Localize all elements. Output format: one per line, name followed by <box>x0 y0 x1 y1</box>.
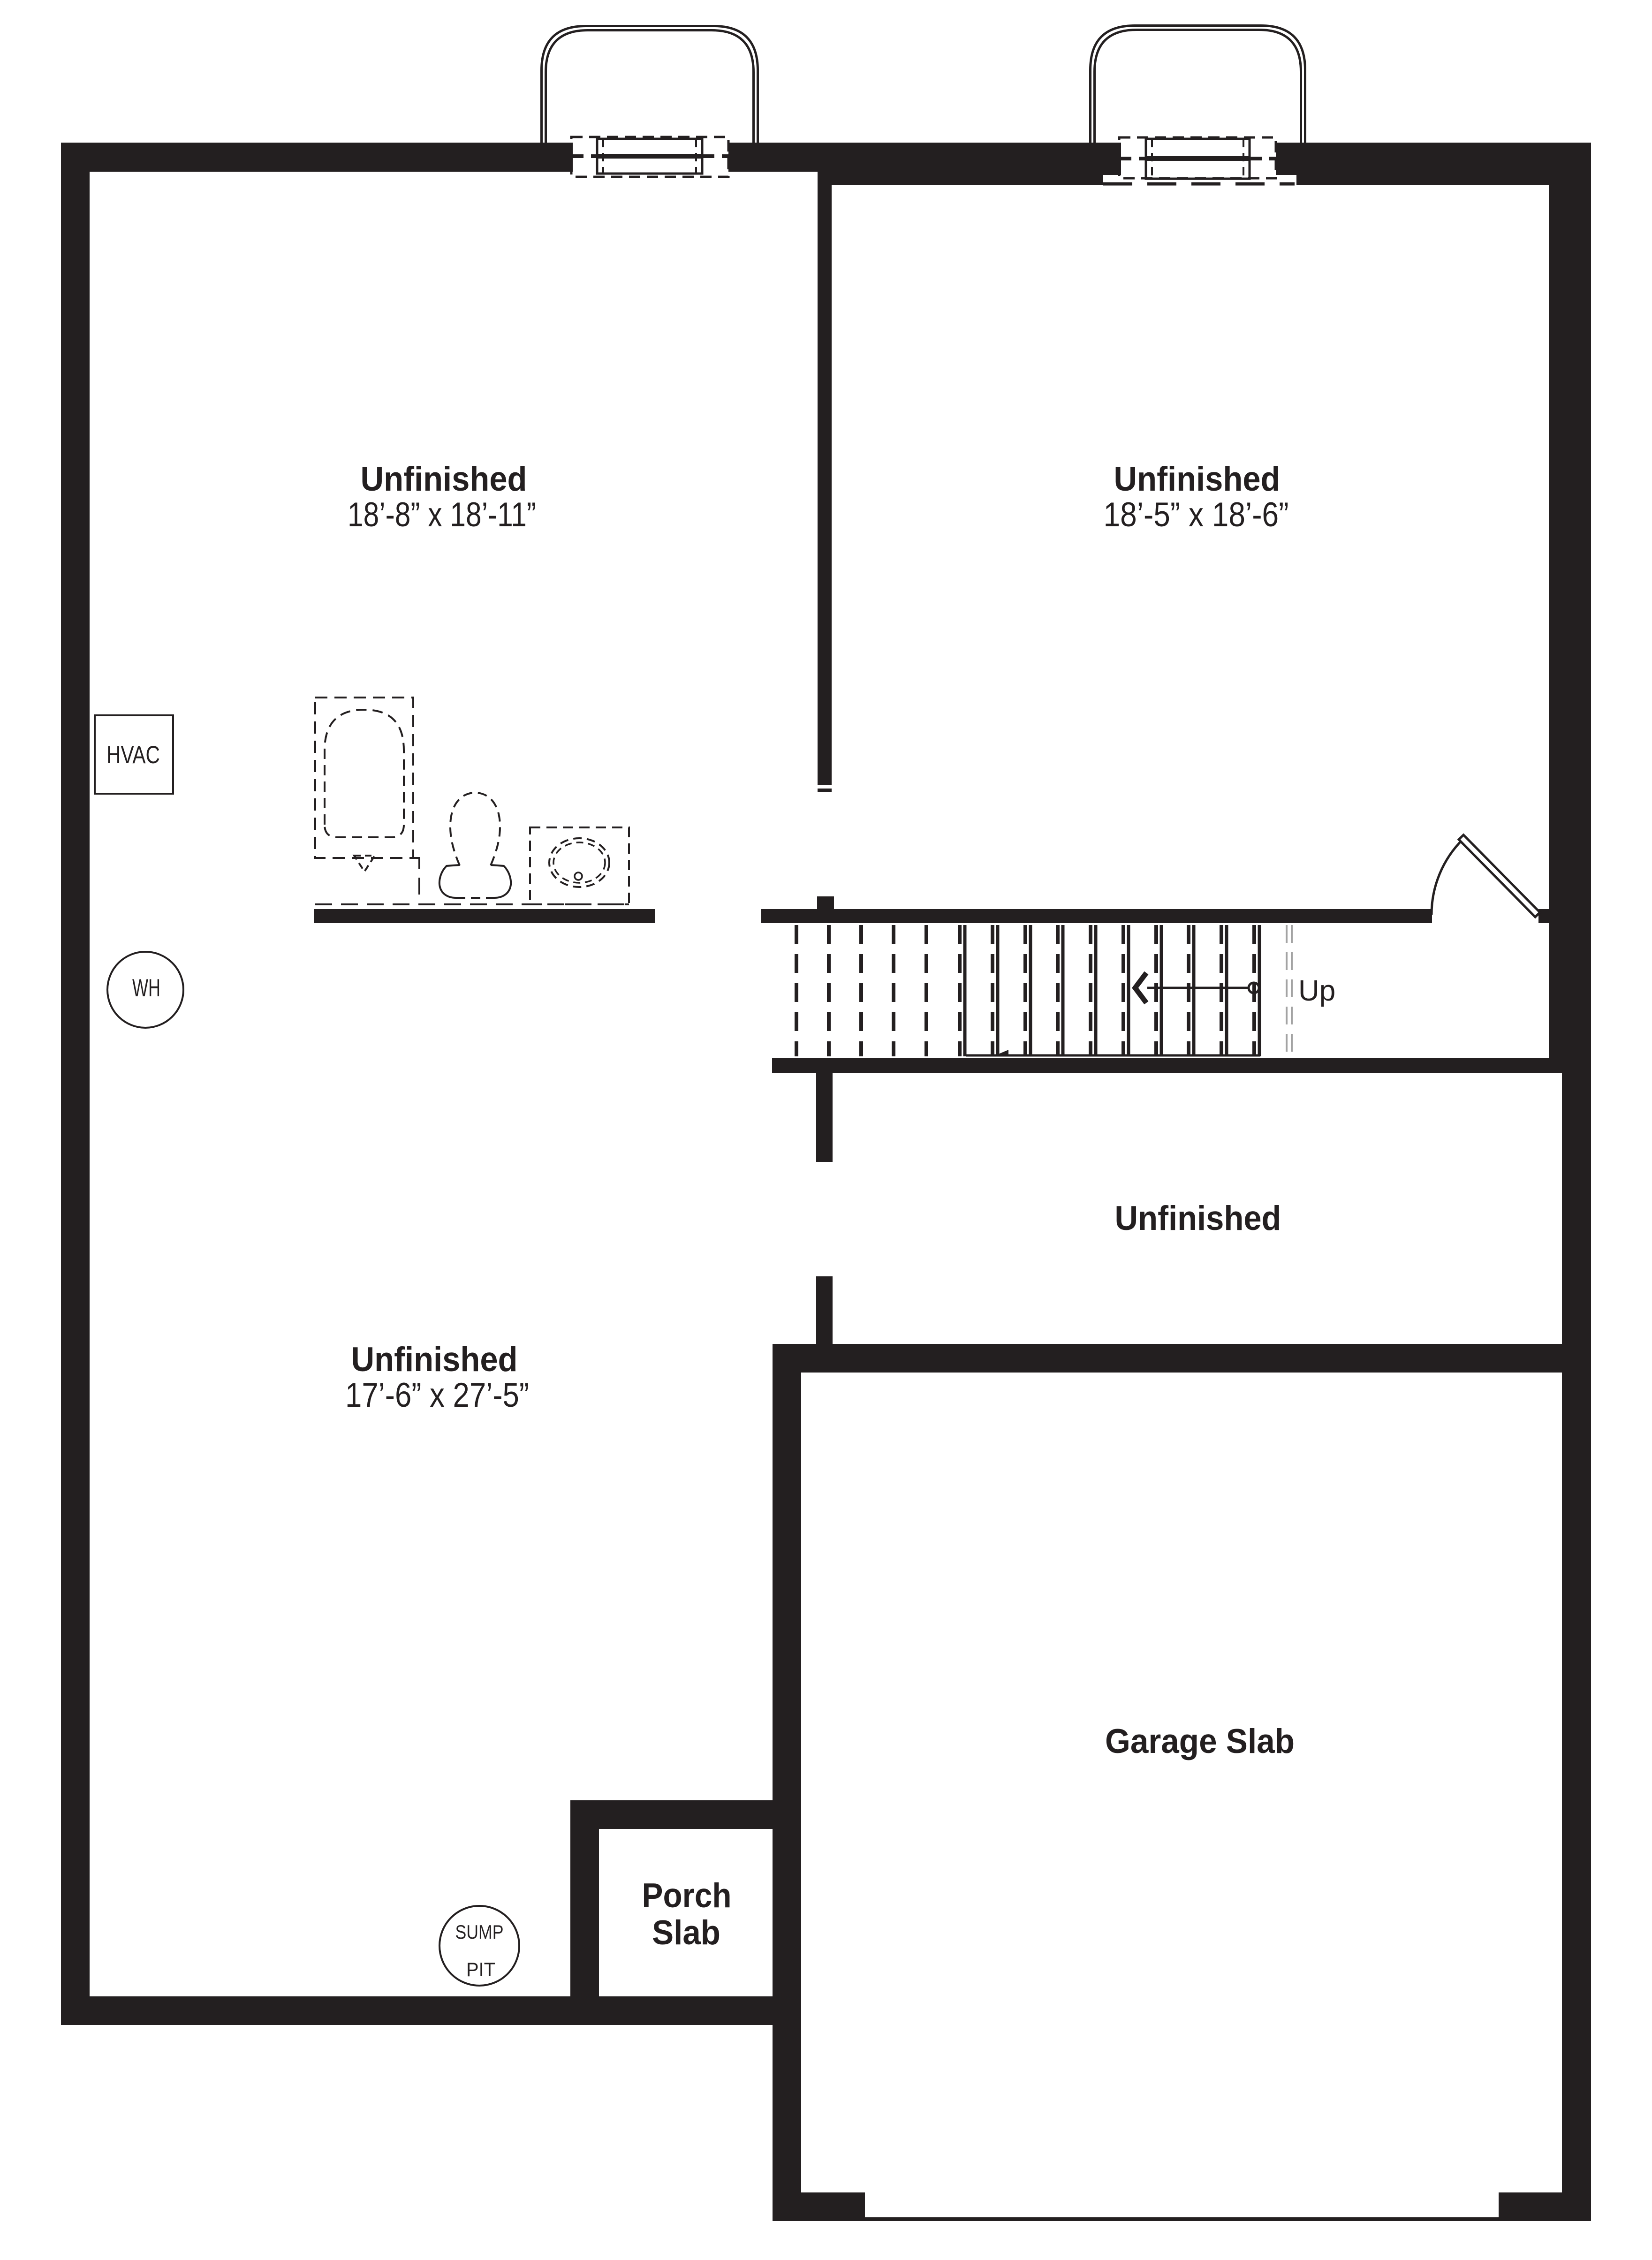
svg-text:WH: WH <box>132 974 160 1002</box>
svg-text:HVAC: HVAC <box>106 741 160 769</box>
svg-text:PIT: PIT <box>466 1958 495 1980</box>
svg-text:17’-6” x 27’-5”: 17’-6” x 27’-5” <box>345 1376 529 1414</box>
svg-text:SUMP: SUMP <box>455 1921 504 1943</box>
svg-text:Unfinished: Unfinished <box>351 1341 518 1379</box>
svg-text:Unfinished: Unfinished <box>361 460 527 498</box>
svg-text:Garage Slab: Garage Slab <box>1105 1722 1295 1760</box>
svg-text:Unfinished: Unfinished <box>1114 460 1281 498</box>
svg-text:Up: Up <box>1298 975 1335 1007</box>
svg-text:18’-5” x 18’-6”: 18’-5” x 18’-6” <box>1104 496 1289 534</box>
svg-text:18’-8” x 18’-11”: 18’-8” x 18’-11” <box>348 496 536 534</box>
svg-text:Slab: Slab <box>652 1914 720 1952</box>
svg-text:Unfinished: Unfinished <box>1115 1199 1281 1237</box>
svg-text:Porch: Porch <box>642 1877 732 1915</box>
